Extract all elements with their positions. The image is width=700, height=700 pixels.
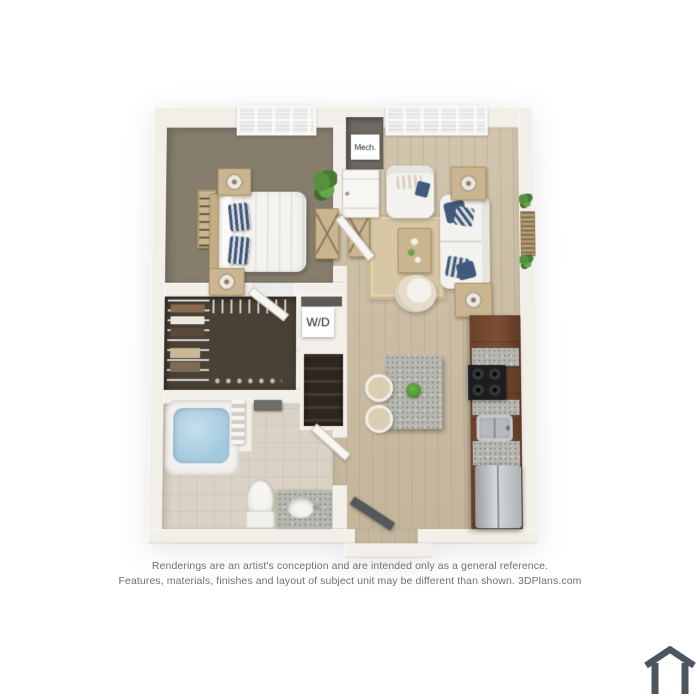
counter-section bbox=[472, 400, 519, 415]
bed-pillow-striped bbox=[228, 202, 250, 231]
range-stove bbox=[466, 365, 506, 400]
wall-bathroom-right-lower bbox=[333, 486, 347, 530]
closet-shoe-row bbox=[212, 375, 282, 387]
entry-door-gap bbox=[355, 529, 418, 543]
coffee-table bbox=[398, 228, 432, 273]
entry-threshold-stub bbox=[345, 543, 431, 557]
side-table-bottom bbox=[454, 283, 492, 318]
wall-plant-upper bbox=[519, 194, 533, 210]
wall-plant-lower bbox=[520, 254, 534, 270]
wall-bottom bbox=[148, 529, 538, 543]
side-table-top bbox=[451, 166, 487, 200]
disclaimer-line-2: Features, materials, finishes and layout… bbox=[0, 574, 700, 589]
floor-plan: Mech. W/D bbox=[147, 109, 542, 557]
bedroom-console-table bbox=[315, 208, 339, 259]
nightstand-top bbox=[217, 168, 251, 195]
wd-label-text: W/D bbox=[306, 315, 329, 329]
closet-item bbox=[170, 348, 200, 358]
vanity-faucet bbox=[313, 504, 320, 511]
house-logo-icon bbox=[644, 646, 696, 696]
island-bowl bbox=[406, 383, 421, 398]
living-room-window bbox=[385, 105, 487, 136]
closet-item bbox=[170, 362, 200, 372]
bedroom-window bbox=[237, 105, 317, 136]
vanity-sink bbox=[287, 498, 313, 518]
slat-wall-art bbox=[520, 211, 535, 256]
bath-shelf bbox=[254, 400, 282, 411]
shower-curtain bbox=[231, 400, 244, 444]
island-stool bbox=[365, 405, 393, 433]
wd-label: W/D bbox=[302, 307, 334, 337]
mech-label-text: Mech. bbox=[354, 143, 375, 152]
counter-section bbox=[472, 348, 519, 366]
armchair bbox=[386, 165, 434, 218]
sofa-pillow-navy bbox=[455, 260, 477, 281]
bed-pillow-striped bbox=[228, 236, 250, 265]
closet-shelves-left bbox=[167, 300, 210, 387]
bathtub-water bbox=[173, 408, 230, 463]
kitchen-sink bbox=[476, 415, 512, 441]
swivel-barrel-chair bbox=[395, 275, 437, 312]
disclaimer-line-1: Renderings are an artist's conception an… bbox=[0, 559, 700, 574]
closet-item bbox=[170, 316, 204, 324]
mech-label: Mech. bbox=[351, 135, 380, 160]
disclaimer: Renderings are an artist's conception an… bbox=[0, 559, 700, 589]
counter-section bbox=[473, 441, 521, 465]
pantry-closet bbox=[300, 350, 347, 430]
wd-closet-recess bbox=[301, 297, 342, 307]
nightstand-bottom bbox=[209, 268, 245, 296]
island-stool bbox=[365, 374, 393, 402]
wall-bedroom-right-lower bbox=[333, 266, 347, 283]
bedroom-plant bbox=[313, 170, 337, 203]
sofa bbox=[440, 195, 490, 289]
sofa-pillow-striped bbox=[454, 206, 475, 227]
floorplan-page: Mech. W/D bbox=[0, 0, 700, 700]
toilet-tank bbox=[246, 511, 274, 528]
closet-item bbox=[171, 304, 205, 312]
closet-item bbox=[170, 328, 204, 336]
armchair-navy-pillow bbox=[414, 181, 430, 198]
refrigerator bbox=[475, 465, 522, 528]
entry-door-top bbox=[342, 169, 380, 218]
